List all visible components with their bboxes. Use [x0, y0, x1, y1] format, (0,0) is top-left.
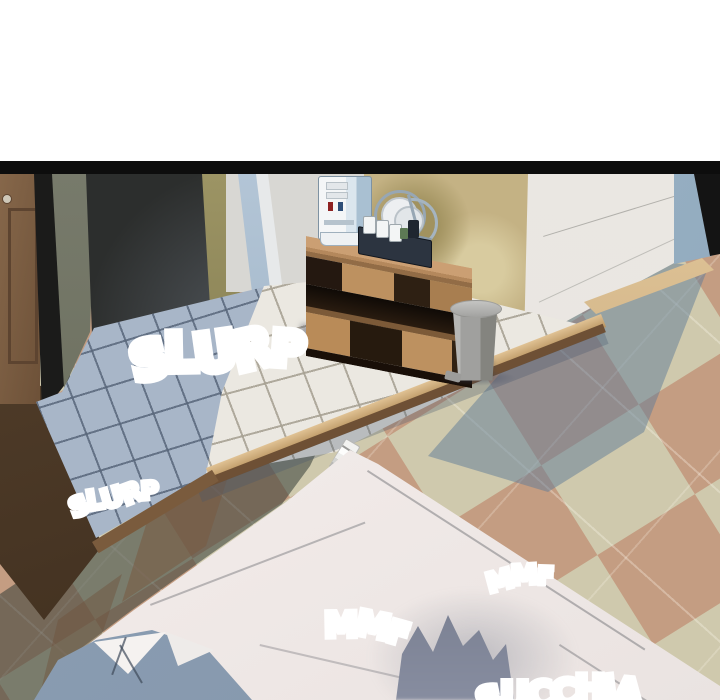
bottle-green [400, 228, 408, 239]
bottle-dark [408, 220, 419, 238]
trash-can-lid [450, 300, 502, 318]
cup [376, 220, 389, 238]
dispenser-vent [326, 182, 348, 190]
dispenser-drip-tray [324, 220, 354, 225]
trash-can [452, 308, 498, 382]
webtoon-page: SLURP SLURP MMF MMF SUCCHIA [0, 0, 720, 700]
panel-border-line [0, 161, 720, 174]
dispenser-cold-tap [338, 202, 343, 211]
dispenser-hot-tap [328, 202, 333, 211]
comic-panel: SLURP SLURP MMF MMF SUCCHIA [0, 174, 720, 700]
door-knob [2, 194, 12, 204]
cup [363, 216, 376, 234]
entry-door-panel [8, 208, 38, 364]
dispenser-vent [326, 192, 348, 199]
